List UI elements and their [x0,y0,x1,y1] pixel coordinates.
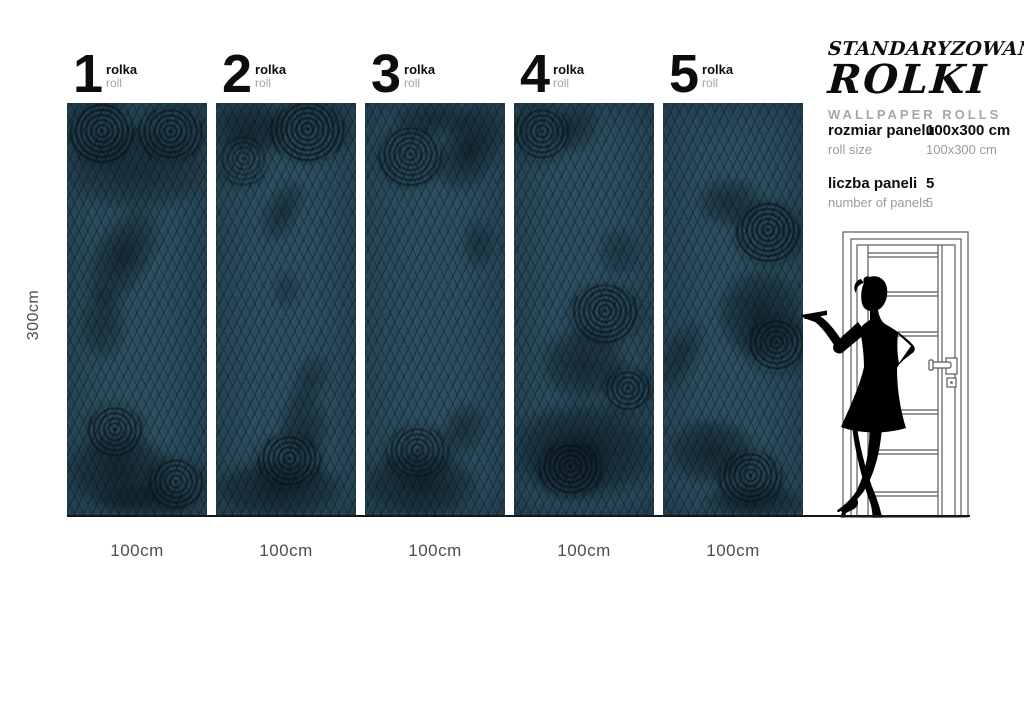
panel-height-dimension: 300cm [25,277,45,353]
floral-motif [514,401,654,500]
floral-motif [95,484,193,517]
floral-motif [431,395,495,466]
title-line-rolki: ROLKI [827,60,1010,100]
spec-value-en: 5 [926,194,1018,212]
wallpaper-panel [365,103,505,517]
panel-width-dimension: 100cm [216,541,356,561]
panel-label-rolka: rolka [702,63,733,77]
spec-row-panel-count: liczba paneli number of panels 5 5 [828,175,1018,211]
panel-label-roll: roll [106,77,137,91]
panel-label-rolka: rolka [553,63,584,77]
wallpaper-panel [514,103,654,517]
title-subtitle: WALLPAPER ROLLS [828,107,1008,122]
floral-motif [216,459,342,517]
panel-label-roll: roll [702,77,733,91]
woman-silhouette-icon [798,276,924,522]
wallpaper-panel [663,103,803,517]
panel-width-dimension: 100cm [365,541,505,561]
spec-label-pl: liczba paneli [828,175,926,194]
floral-motif [386,426,449,480]
floral-motif [258,434,321,488]
panel-sublabels: rolka roll [702,52,733,91]
panel-number: 2 [222,52,250,96]
panel-header: 3 rolka roll [365,52,505,103]
floral-motif [736,202,800,264]
floral-motif [252,173,314,248]
floral-motif [279,393,328,459]
panel-label-rolka: rolka [106,63,137,77]
spec-label-en: number of panels [828,194,926,212]
panel-label-roll: roll [553,77,584,91]
figure-illustration [798,276,924,522]
spec-row-roll-size: rozmiar panelu roll size 100x300 cm 100x… [828,122,1018,158]
panel-sublabels: rolka roll [404,52,435,91]
wallpaper-panel [216,103,356,517]
panel-header: 2 rolka roll [216,52,356,103]
wallpaper-rolls-infographic: 300cm 1 rolka roll 100cm 2 rolka roll 10… [0,0,1024,724]
panel-width-dimension: 100cm [67,541,207,561]
panel-number: 1 [73,52,101,96]
panel-sublabels: rolka roll [553,52,584,91]
floral-motif [698,178,761,228]
panel-column-4: 4 rolka roll 100cm [514,52,654,561]
panel-width-dimension: 100cm [663,541,803,561]
floral-motif [463,219,494,269]
floral-motif [424,103,505,202]
floral-motif [542,327,626,402]
floral-motif [87,405,143,459]
panel-column-3: 3 rolka roll 100cm [365,52,505,561]
panel-column-2: 2 rolka roll 100cm [216,52,356,561]
floral-motif [539,442,602,496]
floral-motif [73,196,173,317]
panel-width-dimension: 100cm [514,541,654,561]
floral-motif [216,103,286,153]
wallpaper-panel [67,103,207,517]
floral-motif [705,484,800,517]
panel-header: 5 rolka roll [663,52,803,103]
floral-motif [137,107,204,161]
panel-header: 1 rolka roll [67,52,207,103]
spec-value-pl: 5 [926,175,1018,194]
spec-label-pl: rozmiar panelu [828,122,926,141]
panel-label-rolka: rolka [255,63,286,77]
floral-motif [70,103,134,165]
floral-motif [514,107,570,161]
floral-motif [67,434,172,509]
panel-header: 4 rolka roll [514,52,654,103]
spec-label-en: roll size [828,141,926,159]
floral-motif [598,227,640,277]
panel-column-1: 1 rolka roll 100cm [67,52,207,561]
floral-motif [605,368,651,414]
floral-motif [219,136,268,186]
floral-motif [281,347,339,415]
floor-baseline [67,515,970,517]
spec-value-pl: 100x300 cm [926,122,1018,141]
floral-motif [67,128,207,211]
panel-sublabels: rolka roll [106,52,137,91]
floral-motif [670,418,754,484]
panel-number: 4 [520,52,548,96]
panel-number: 3 [371,52,399,96]
spec-value-en: 100x300 cm [926,141,1018,159]
floral-motif [570,285,640,343]
panel-number: 5 [669,52,697,96]
spec-list: rozmiar panelu roll size 100x300 cm 100x… [828,122,1018,229]
title-block: STANDARYZOWANE ROLKI WALLPAPER ROLLS [828,38,1008,122]
floral-motif [719,451,782,505]
panel-label-roll: roll [255,77,286,91]
floral-motif [379,128,442,186]
panel-column-5: 5 rolka roll 100cm [663,52,803,561]
floral-motif [148,459,204,509]
floral-motif [547,103,607,160]
floral-motif [719,269,800,360]
floral-motif [747,318,803,372]
floral-motif [393,103,477,136]
floral-motif [272,269,300,310]
floral-motif [365,451,477,517]
floral-motif [663,314,715,397]
panel-label-roll: roll [404,77,435,91]
floral-motif [81,285,126,360]
panel-label-rolka: rolka [404,63,435,77]
panel-sublabels: rolka roll [255,52,286,91]
floral-motif [269,103,346,161]
